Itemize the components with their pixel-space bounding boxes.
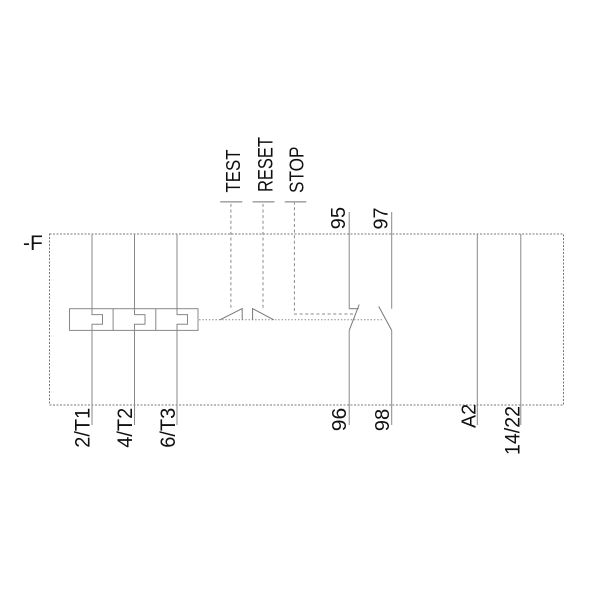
svg-text:97: 97 <box>371 208 393 230</box>
svg-text:2/T1: 2/T1 <box>72 408 95 448</box>
svg-text:TEST: TEST <box>223 150 245 193</box>
svg-text:-F: -F <box>23 232 43 255</box>
svg-text:98: 98 <box>372 409 394 432</box>
svg-text:RESET: RESET <box>255 137 278 192</box>
svg-text:95: 95 <box>328 207 350 230</box>
svg-text:4/T2: 4/T2 <box>114 408 137 448</box>
svg-text:A2: A2 <box>459 404 481 428</box>
svg-text:96: 96 <box>329 408 351 432</box>
svg-text:14/22: 14/22 <box>502 406 525 455</box>
svg-text:STOP: STOP <box>287 147 309 194</box>
svg-text:6/T3: 6/T3 <box>157 408 180 448</box>
